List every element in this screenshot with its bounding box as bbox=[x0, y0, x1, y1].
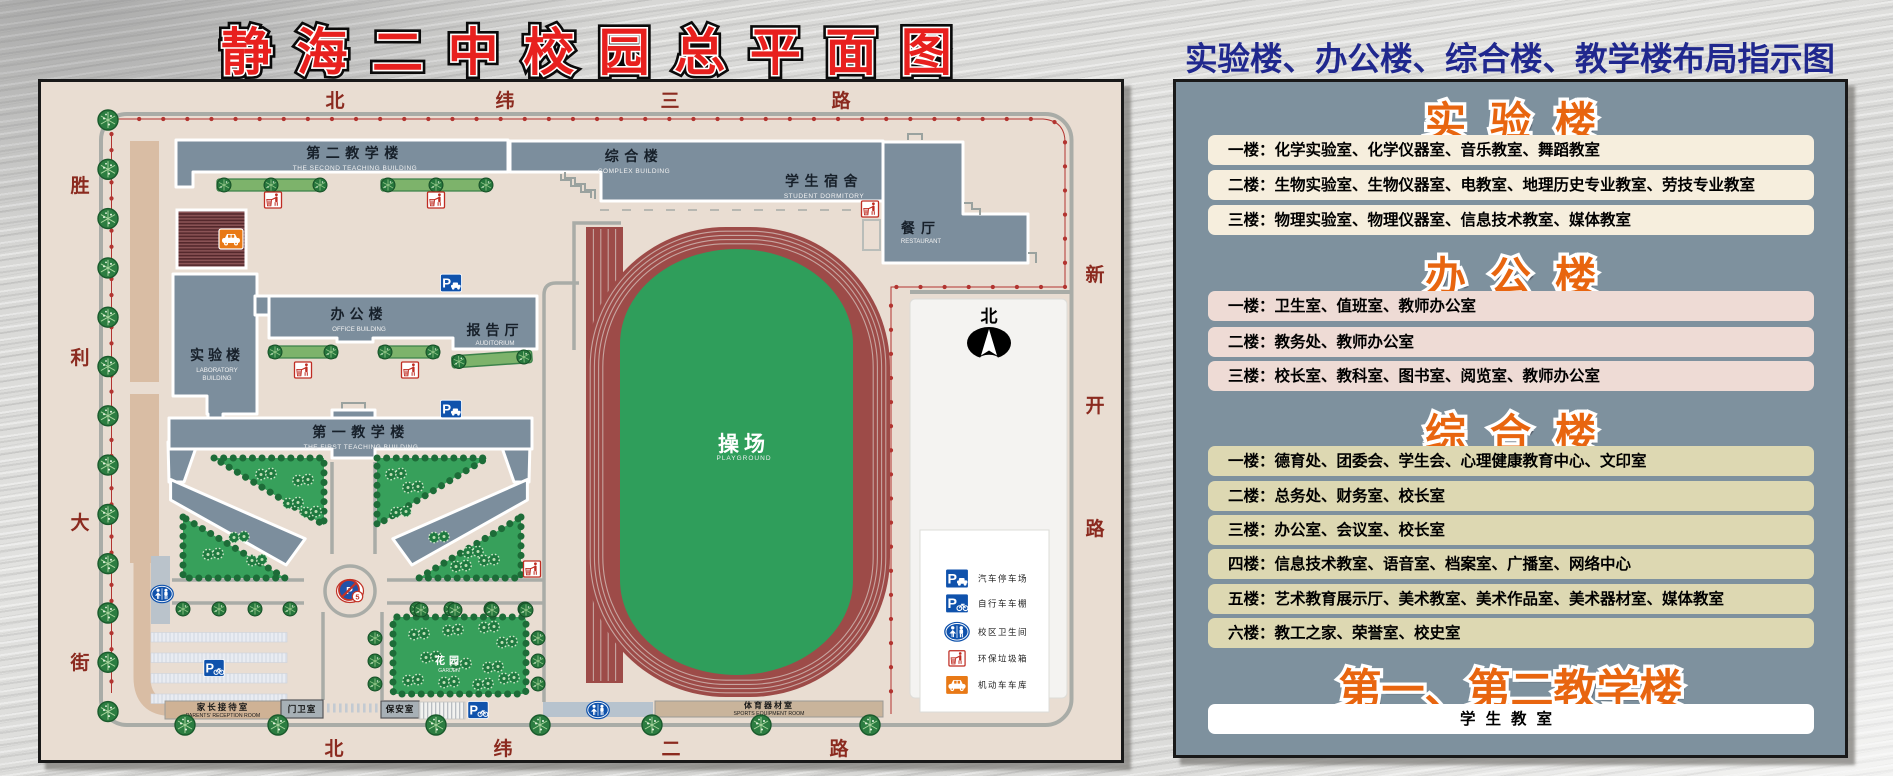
svg-text:三: 三 bbox=[660, 91, 679, 112]
svg-text:报告厅: 报告厅 bbox=[467, 322, 524, 338]
svg-text:学生宿舍: 学生宿舍 bbox=[785, 173, 863, 189]
svg-text:保安室: 保安室 bbox=[385, 704, 415, 714]
svg-text:北: 北 bbox=[981, 307, 998, 326]
svg-text:5: 5 bbox=[355, 593, 359, 602]
svg-text:家长接待室: 家长接待室 bbox=[197, 702, 250, 712]
svg-text:RESTAURANT: RESTAURANT bbox=[901, 239, 942, 245]
svg-text:汽车停车场: 汽车停车场 bbox=[978, 574, 1028, 584]
svg-text:纬: 纬 bbox=[495, 89, 514, 112]
svg-text:机动车车库: 机动车车库 bbox=[978, 680, 1028, 690]
svg-text:实验楼: 实验楼 bbox=[190, 347, 244, 363]
svg-text:二: 二 bbox=[661, 739, 680, 760]
svg-text:OFFICE BUILDING: OFFICE BUILDING bbox=[332, 326, 386, 333]
svg-text:环保垃圾箱: 环保垃圾箱 bbox=[978, 653, 1028, 663]
svg-text:PARENTS’ RECEPTION ROOM: PARENTS’ RECEPTION ROOM bbox=[186, 713, 260, 719]
svg-text:北: 北 bbox=[325, 90, 344, 112]
svg-text:LABORATORY: LABORATORY bbox=[196, 367, 238, 374]
svg-text:THE SECOND TEACHING BUILDING: THE SECOND TEACHING BUILDING bbox=[293, 165, 417, 172]
svg-text:第一教学楼: 第一教学楼 bbox=[312, 424, 410, 440]
svg-text:THE FIRST TEACHING BUILDING: THE FIRST TEACHING BUILDING bbox=[304, 444, 419, 451]
svg-text:校区卫生间: 校区卫生间 bbox=[978, 627, 1028, 637]
svg-text:利: 利 bbox=[70, 347, 89, 369]
svg-text:大: 大 bbox=[70, 511, 89, 534]
svg-text:第二教学楼: 第二教学楼 bbox=[306, 145, 404, 161]
svg-text:新: 新 bbox=[1085, 263, 1104, 286]
svg-text:GARDEN: GARDEN bbox=[438, 668, 460, 674]
svg-text:PLAYGROUND: PLAYGROUND bbox=[716, 455, 771, 462]
svg-text:路: 路 bbox=[829, 737, 849, 760]
svg-text:街: 街 bbox=[69, 651, 89, 674]
svg-text:胜: 胜 bbox=[70, 175, 89, 197]
svg-text:办公楼: 办公楼 bbox=[331, 306, 388, 322]
svg-text:纬: 纬 bbox=[493, 737, 512, 760]
svg-text:北: 北 bbox=[324, 738, 343, 760]
svg-text:路: 路 bbox=[831, 89, 851, 112]
svg-text:COMPLEX BUILDING: COMPLEX BUILDING bbox=[598, 168, 670, 175]
svg-text:STUDENT DORMITORY: STUDENT DORMITORY bbox=[784, 193, 865, 200]
svg-text:开: 开 bbox=[1085, 396, 1104, 417]
svg-text:门卫室: 门卫室 bbox=[288, 704, 317, 714]
svg-text:体育器材室: 体育器材室 bbox=[744, 700, 794, 710]
svg-text:AUDITORIUM: AUDITORIUM bbox=[475, 340, 514, 347]
svg-text:SPORTS EQUIPMENT ROOM: SPORTS EQUIPMENT ROOM bbox=[733, 711, 804, 717]
svg-text:BUILDING: BUILDING bbox=[202, 375, 231, 382]
svg-text:餐厅: 餐厅 bbox=[900, 220, 941, 236]
svg-text:操场: 操场 bbox=[718, 433, 770, 456]
svg-text:自行车车棚: 自行车车棚 bbox=[978, 598, 1028, 608]
svg-text:花园: 花园 bbox=[435, 654, 463, 667]
svg-text:综合楼: 综合楼 bbox=[605, 148, 664, 164]
svg-text:路: 路 bbox=[1085, 517, 1105, 540]
